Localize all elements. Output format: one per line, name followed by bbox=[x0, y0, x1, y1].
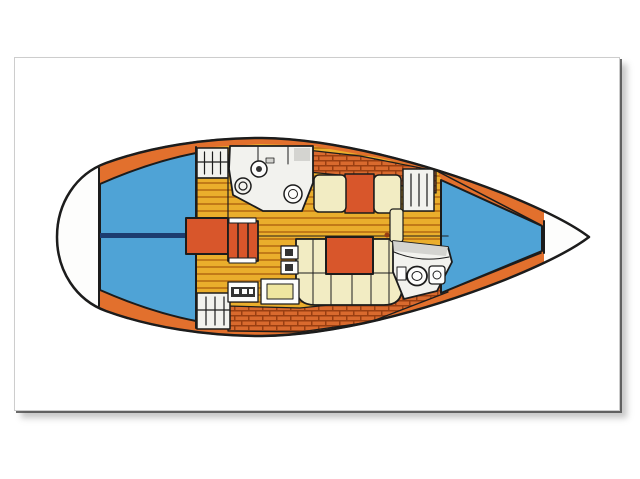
galley-sink-drain bbox=[256, 166, 262, 172]
corridor-seat bbox=[390, 209, 403, 242]
toilet bbox=[407, 267, 427, 286]
boat-layout-diagram bbox=[0, 0, 640, 479]
table-fitting-dot bbox=[385, 233, 390, 238]
centerline bbox=[100, 233, 192, 238]
settee-cushion-aft bbox=[314, 175, 346, 212]
heads-sink bbox=[429, 266, 445, 284]
companionway-steps bbox=[228, 218, 258, 263]
galley-stove-burner bbox=[235, 178, 251, 194]
galley-faucet bbox=[266, 158, 274, 163]
chart-table bbox=[261, 279, 299, 304]
galley-counter-shade bbox=[294, 148, 310, 161]
companionway-block bbox=[186, 218, 228, 254]
saloon-table bbox=[326, 237, 373, 274]
forward-cabin-door bbox=[403, 169, 434, 211]
galley-sink-2 bbox=[284, 185, 302, 203]
nav-instrument-panel bbox=[228, 282, 258, 302]
boat-plan bbox=[57, 138, 589, 336]
settee-backrest bbox=[345, 174, 374, 213]
hanging-locker-starboard-aft bbox=[197, 293, 230, 329]
toilet-tank bbox=[397, 267, 406, 280]
settee-cushion-fwd bbox=[374, 175, 401, 213]
